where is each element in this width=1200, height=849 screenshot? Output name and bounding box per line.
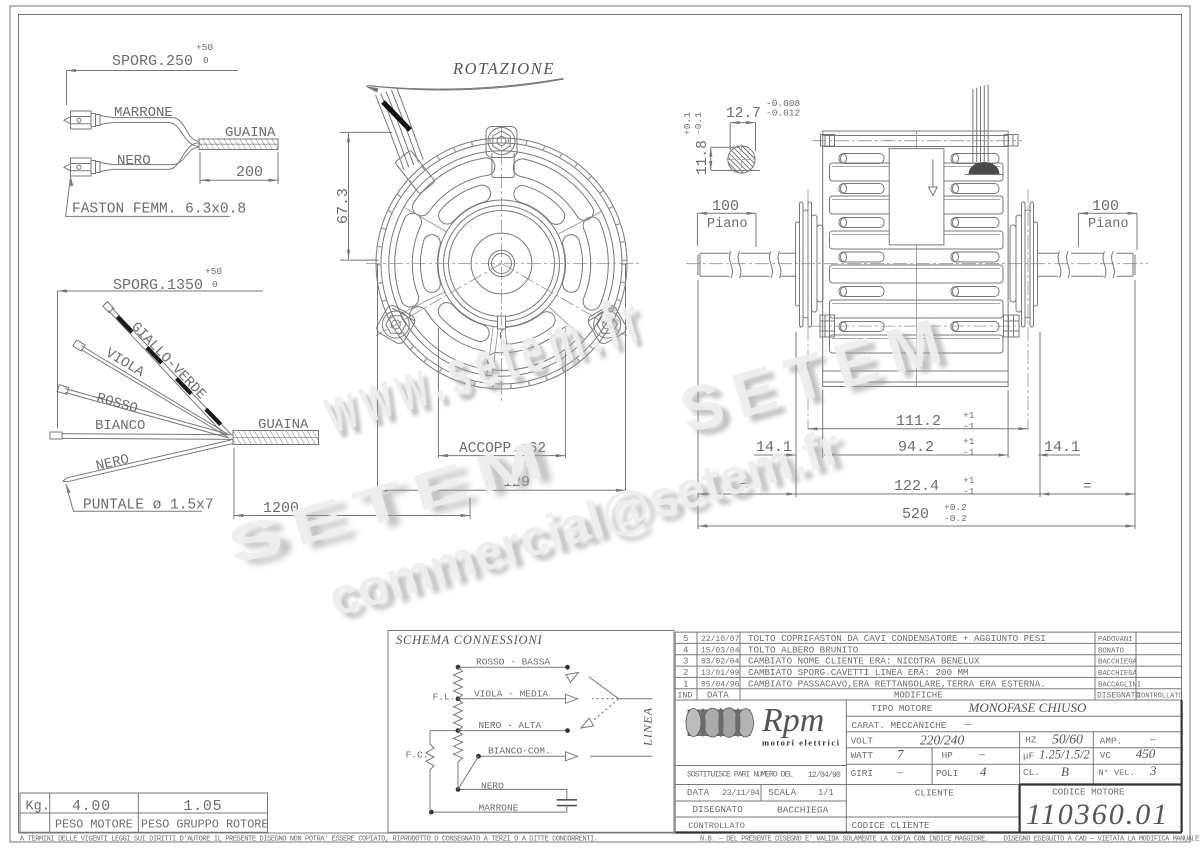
svg-text:22/10/07: 22/10/07 (701, 635, 740, 644)
svg-text:12.7: 12.7 (726, 106, 761, 122)
svg-text:PESO MOTORE: PESO MOTORE (55, 818, 133, 832)
svg-text:BACCAGLINI: BACCAGLINI (1098, 681, 1141, 689)
svg-text:DATA: DATA (687, 787, 710, 798)
svg-text:HZ: HZ (1025, 735, 1037, 746)
svg-text:+0.2: +0.2 (944, 502, 967, 513)
svg-text:CONTROLLATO: CONTROLLATO (688, 821, 745, 831)
svg-text:F.L.: F.L. (433, 692, 456, 703)
svg-text:520: 520 (902, 506, 929, 523)
svg-text:BONATO: BONATO (1098, 647, 1124, 655)
svg-text:NERO: NERO (481, 781, 504, 792)
svg-text:WATT: WATT (851, 750, 874, 761)
svg-text:50/60: 50/60 (1052, 732, 1083, 747)
svg-text:PESO GRUPPO ROTORE: PESO GRUPPO ROTORE (141, 818, 268, 832)
svg-text:=: = (740, 479, 748, 495)
svg-text:BACCHIEGA: BACCHIEGA (1098, 670, 1138, 678)
svg-text:+50: +50 (196, 42, 213, 53)
svg-text:POLI: POLI (936, 768, 958, 779)
svg-text:23/11/94: 23/11/94 (722, 788, 760, 798)
svg-text:PADOVANI: PADOVANI (1098, 636, 1133, 644)
svg-text:4: 4 (683, 645, 688, 655)
svg-text:—: — (896, 769, 904, 780)
svg-text:=: = (1083, 479, 1091, 495)
svg-text:-1: -1 (963, 447, 975, 458)
svg-text:CODICE MOTORE: CODICE MOTORE (1052, 787, 1125, 798)
svg-text:SCALA: SCALA (768, 787, 796, 798)
svg-text:BIANCO-COM.: BIANCO-COM. (488, 746, 551, 757)
svg-text:13/01/99: 13/01/99 (701, 669, 740, 678)
svg-text:CL.: CL. (1023, 767, 1040, 778)
svg-text:Kg.: Kg. (26, 800, 50, 815)
svg-text:GIALLO-VERDE: GIALLO-VERDE (127, 319, 209, 403)
svg-text:CLIENTE: CLIENTE (915, 788, 954, 799)
svg-text:3: 3 (1149, 763, 1157, 778)
svg-text:VOLT: VOLT (851, 736, 874, 747)
svg-text:122.4: 122.4 (894, 478, 939, 495)
svg-text:MARRONE: MARRONE (114, 105, 173, 121)
svg-text:94.2: 94.2 (898, 439, 934, 456)
svg-text:ROTAZIONE: ROTAZIONE (452, 59, 555, 78)
svg-text:14.1: 14.1 (756, 439, 792, 456)
svg-text:67.3: 67.3 (335, 188, 352, 224)
svg-text:1.25/1.5/2: 1.25/1.5/2 (1039, 748, 1090, 762)
svg-text:VC: VC (1100, 750, 1112, 761)
svg-text:1.05: 1.05 (184, 798, 223, 815)
svg-text:CAMBIATO SPORG.CAVETTI LINEA E: CAMBIATO SPORG.CAVETTI LINEA ERA: 200 MM (748, 667, 969, 678)
svg-text:NERO - ALTA: NERO - ALTA (479, 720, 542, 731)
svg-text:100: 100 (712, 198, 739, 215)
svg-text:BIANCO: BIANCO (95, 418, 145, 434)
svg-text:SPORG.250: SPORG.250 (112, 53, 193, 70)
svg-text:F.C.: F.C. (406, 750, 429, 761)
svg-text:N.B. — DEL PRESENTE DISEGNO E': N.B. — DEL PRESENTE DISEGNO E' VALIDA SO… (700, 836, 1199, 844)
svg-text:TOLTO COPRIFASTON DA CAVI COND: TOLTO COPRIFASTON DA CAVI CONDENSATORE +… (748, 633, 1046, 644)
svg-text:BACCHIEGA: BACCHIEGA (777, 804, 829, 815)
svg-text:SCHEMA CONNESSIONI: SCHEMA CONNESSIONI (396, 633, 542, 647)
svg-text:GIRI: GIRI (851, 768, 873, 779)
svg-text:CONTROLLATO: CONTROLLATO (1137, 692, 1183, 700)
svg-text:12/04/90: 12/04/90 (808, 771, 841, 780)
svg-text:1200: 1200 (263, 500, 299, 517)
svg-text:-1: -1 (963, 486, 975, 497)
svg-text:CAMBIATO NOME CLIENTE ERA: NIC: CAMBIATO NOME CLIENTE ERA: NICOTRA BENEL… (748, 656, 980, 667)
svg-text:+1: +1 (963, 475, 975, 486)
svg-text:DATA: DATA (707, 690, 729, 700)
svg-text:ø 129: ø 129 (485, 474, 530, 491)
svg-text:TOLTO ALBERO BRUNITO: TOLTO ALBERO BRUNITO (748, 644, 859, 655)
svg-text:03/02/04: 03/02/04 (701, 658, 740, 667)
svg-text:-0.2: -0.2 (944, 513, 967, 524)
svg-text:-0.012: -0.012 (766, 108, 801, 119)
svg-text:100: 100 (1092, 198, 1119, 215)
svg-text:1: 1 (683, 679, 688, 689)
svg-text:IND: IND (678, 691, 693, 700)
svg-text:PUNTALE ø 1.5x7: PUNTALE ø 1.5x7 (83, 498, 214, 514)
svg-text:μF: μF (1023, 751, 1034, 762)
svg-text:DISEGNATO: DISEGNATO (693, 804, 744, 815)
svg-text:Piano: Piano (1088, 217, 1129, 232)
svg-text:HP: HP (942, 750, 954, 761)
svg-text:200: 200 (236, 164, 263, 181)
svg-text:ROSSO: ROSSO (95, 390, 140, 417)
svg-text:11.8: 11.8 (695, 140, 711, 175)
svg-text:BACCHIEGA: BACCHIEGA (1098, 659, 1138, 667)
svg-text:2: 2 (683, 668, 688, 678)
svg-text:-0.1: -0.1 (693, 112, 704, 135)
svg-text:1/1: 1/1 (818, 788, 834, 798)
svg-text:FASTON FEMM. 6.3x0.8: FASTON FEMM. 6.3x0.8 (72, 202, 246, 218)
svg-text:SOSTITUISCE PARI NUMERO DEL: SOSTITUISCE PARI NUMERO DEL (687, 771, 793, 780)
svg-text:4.00: 4.00 (72, 798, 111, 815)
svg-text:5: 5 (683, 634, 688, 644)
svg-text:DISEGNATO: DISEGNATO (1097, 691, 1140, 700)
svg-text:450: 450 (1136, 746, 1156, 761)
svg-text:VIOLA - MEDIA: VIOLA - MEDIA (474, 688, 548, 699)
svg-text:-1: -1 (963, 421, 975, 432)
svg-text:0: 0 (203, 55, 209, 66)
svg-text:14.1: 14.1 (1044, 439, 1080, 456)
svg-text:B: B (1061, 764, 1069, 779)
svg-text:+1: +1 (963, 410, 975, 421)
svg-text:MONOFASE CHIUSO: MONOFASE CHIUSO (968, 700, 1087, 715)
svg-text:0: 0 (212, 279, 218, 290)
svg-text:220/240: 220/240 (920, 732, 965, 747)
svg-text:111.2: 111.2 (896, 413, 941, 430)
svg-text:110360.01: 110360.01 (1026, 798, 1169, 831)
svg-text:—: — (978, 751, 986, 762)
svg-text:LINEA: LINEA (641, 707, 655, 747)
svg-text:+0.1: +0.1 (682, 112, 693, 135)
svg-text:3: 3 (683, 657, 688, 667)
svg-text:7: 7 (897, 747, 904, 762)
svg-text:A TERMINI DELLE VIGENTI LEGGI: A TERMINI DELLE VIGENTI LEGGI SUI DIRITT… (20, 836, 598, 844)
svg-text:+1: +1 (963, 436, 975, 447)
svg-text:Rpm: Rpm (761, 702, 824, 739)
svg-text:4: 4 (980, 764, 987, 779)
svg-text:N° VEL.: N° VEL. (1099, 768, 1135, 778)
svg-text:TIPO MOTORE: TIPO MOTORE (871, 703, 933, 714)
svg-text:ROSSO - BASSA: ROSSO - BASSA (476, 657, 550, 668)
svg-text:05/04/96: 05/04/96 (701, 680, 740, 689)
svg-text:NERO: NERO (117, 153, 151, 169)
svg-text:CODICE CLIENTE: CODICE CLIENTE (852, 820, 931, 831)
svg-text:Piano: Piano (707, 217, 748, 232)
svg-text:AMP.: AMP. (1100, 736, 1122, 747)
svg-text:CAMBIATO PASSACAVO,ERA RETTANG: CAMBIATO PASSACAVO,ERA RETTANGOLARE,TERR… (748, 678, 1046, 689)
svg-text:NERO: NERO (95, 452, 131, 475)
svg-text:15/03/04: 15/03/04 (701, 646, 740, 655)
svg-text:ACCOPP.ø62: ACCOPP.ø62 (459, 441, 546, 457)
svg-text:CARAT. MECCANICHE: CARAT. MECCANICHE (852, 720, 947, 731)
svg-text:MODIFICHE: MODIFICHE (894, 690, 943, 700)
svg-text:—: — (964, 720, 972, 731)
svg-text:motori elettrici: motori elettrici (762, 738, 841, 748)
svg-text:+50: +50 (205, 266, 222, 277)
